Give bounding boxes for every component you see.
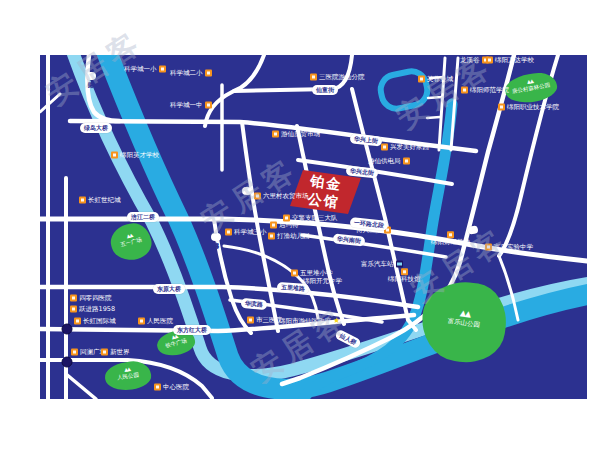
- poi-marker-icon: [205, 70, 212, 77]
- poi-label: 绵阳师范学院: [461, 87, 509, 94]
- poi-label: 人民医院: [138, 318, 173, 325]
- poi-text: 新世界: [110, 349, 130, 356]
- poi-label: 富乐实验中学: [485, 244, 533, 251]
- poi-label: 打渔幼儿园: [268, 233, 310, 240]
- poi-marker-icon: [79, 197, 86, 204]
- poi-text: 富乐汽车站: [361, 261, 394, 268]
- junction-dot: [62, 357, 73, 368]
- map-canvas: ▲▲五一广场▲▲铁牛广场▲▲人民公园▲▲富乐山公园▲▲唐公村森林公园科学城一小科…: [40, 55, 587, 399]
- road-19: [66, 374, 96, 399]
- poi-text: 游仙供电局: [368, 158, 401, 165]
- poi-marker-icon: [310, 74, 317, 81]
- bus-station-icon: [396, 261, 403, 268]
- poi-text: 绵阳财经学校: [431, 239, 470, 246]
- poi-label: 科学城二小: [170, 70, 212, 77]
- map-world: ▲▲五一广场▲▲铁牛广场▲▲人民公园▲▲富乐山公园▲▲唐公村森林公园科学城一小科…: [40, 55, 587, 399]
- poi-text: 遇玛特: [279, 222, 299, 229]
- trees-icon: ▲▲: [459, 309, 470, 318]
- poi-text: 游仙庆贸市场: [281, 131, 320, 138]
- poi-label: 四零四医院: [70, 295, 112, 302]
- park-label: 唐公村森林公园: [512, 83, 551, 95]
- poi-marker-icon: [401, 268, 408, 275]
- poi-label: 兴发美好家园: [381, 144, 429, 151]
- road-label-pill: 绵山路: [211, 233, 221, 241]
- poi-marker-icon: [70, 306, 77, 313]
- poi-text: 兴发美好家园: [390, 144, 429, 151]
- poi-label: 游仙庆贸市场: [272, 131, 320, 138]
- poi-text: 六里村农贸市场: [263, 193, 309, 200]
- poi-label: 绵阳开元中学: [303, 278, 342, 285]
- poi-marker-icon: [225, 229, 232, 236]
- poi-marker-icon: [447, 231, 454, 238]
- poi-label: 新世界: [101, 349, 130, 356]
- poi-text: 科学城一小: [124, 66, 157, 73]
- poi-marker-icon: [403, 158, 410, 165]
- poi-label: 遇玛特: [270, 222, 299, 229]
- poi-marker-icon: [461, 87, 468, 94]
- poi-text: 绵阳职业技术学院: [507, 104, 559, 111]
- poi-marker-icon: [70, 295, 77, 302]
- poi-text: 芙蓉金城: [427, 76, 453, 83]
- poi-label: 长虹世纪城: [79, 197, 121, 204]
- poi-label: 绵阳市游仙区政府★: [279, 317, 340, 325]
- poi-label: 三医院游仙分院: [310, 74, 365, 81]
- road-label-pill: 华滨路: [241, 298, 268, 310]
- poi-label: 绵阳科技馆: [388, 268, 421, 283]
- poi-marker-icon: [159, 66, 166, 73]
- poi-label: 六里村农贸市场: [254, 193, 309, 200]
- road-label-pill: 五里堆路: [277, 282, 310, 294]
- park-label: 富乐山公园: [447, 318, 480, 329]
- poi-marker-icon: [205, 102, 212, 109]
- road-label-pill: 中绵路: [86, 72, 96, 80]
- poi-label: 芙蓉金城: [418, 76, 453, 83]
- poi-text: 绵阳市游仙区政府: [279, 318, 331, 325]
- poi-text: 打渔幼儿园: [277, 233, 310, 240]
- poi-marker-icon: [154, 384, 161, 391]
- poi-marker-icon: [111, 152, 118, 159]
- poi-marker-icon: [486, 57, 493, 64]
- poi-marker-icon: [418, 76, 425, 83]
- poi-label: 中心医院: [154, 384, 189, 391]
- road-label-pill: 东原大桥: [153, 284, 185, 294]
- road-26: [427, 117, 440, 118]
- poi-text: 绵阳师范学院: [470, 87, 509, 94]
- poi-label: 绵阳财经学校: [431, 231, 470, 246]
- park-label: 铁牛广场: [165, 338, 188, 349]
- poi-label: 科学城一中: [170, 102, 212, 109]
- poi-label: 绵阳万达学校: [486, 57, 534, 64]
- poi-text: 长虹国际城: [83, 318, 116, 325]
- poi-text: 跃进路1958: [79, 306, 115, 313]
- poi-text: 科学城一中: [170, 102, 203, 109]
- road-label-pill: 涪江二桥: [127, 212, 159, 222]
- poi-text: 绵阳英才学校: [120, 152, 159, 159]
- poi-marker-icon: [247, 317, 254, 324]
- poi-marker-icon: [268, 233, 275, 240]
- star-icon: ★: [333, 317, 340, 325]
- poi-marker-icon: [485, 244, 492, 251]
- junction-dot: [62, 324, 73, 335]
- road-label-pill: 仙童街: [312, 85, 338, 95]
- poi-label: 科学城三小: [225, 229, 267, 236]
- poi-label: 科学城一小: [124, 66, 166, 73]
- road-11: [352, 89, 416, 330]
- poi-text: 绵阳开元中学: [303, 278, 342, 285]
- poi-text: 长虹世纪城: [88, 197, 121, 204]
- poi-label: 绵阳职业技术学院: [498, 104, 559, 111]
- location-map-screenshot: ▲▲五一广场▲▲铁牛广场▲▲人民公园▲▲富乐山公园▲▲唐公村森林公园科学城一小科…: [0, 0, 600, 450]
- poi-marker-icon: [498, 104, 505, 111]
- poi-marker-icon: [272, 131, 279, 138]
- poi-marker-icon: [138, 318, 145, 325]
- park-label: 五一广场: [120, 237, 143, 248]
- poi-marker-icon: [291, 270, 298, 277]
- poi-text: 中心医院: [163, 384, 189, 391]
- poi-label: 游仙供电局: [368, 158, 410, 165]
- poi-label: 富乐汽车站: [361, 261, 403, 268]
- poi-marker-icon: [381, 144, 388, 151]
- road-label-pill: 绿岛大桥: [80, 123, 112, 133]
- trees-icon: ▲▲: [124, 367, 130, 373]
- poi-label: 龙溪谷: [460, 57, 489, 64]
- poi-label: 五里堆小学: [291, 270, 333, 277]
- poi-text: 人民医院: [147, 318, 173, 325]
- poi-text: 富乐实验中学: [494, 244, 533, 251]
- poi-label: 跃进路1958: [70, 306, 115, 313]
- poi-text: 五里堆小学: [300, 270, 333, 277]
- road-label-pill: 东方红大桥: [173, 325, 211, 335]
- poi-marker-icon: [101, 349, 108, 356]
- poi-label: 绵阳英才学校: [111, 152, 159, 159]
- poi-marker-icon: [254, 193, 261, 200]
- park-label: 人民公园: [117, 373, 140, 382]
- project-name: 铂金公馆: [307, 172, 344, 211]
- poi-marker-icon: [71, 349, 78, 356]
- poi-text: 四零四医院: [79, 295, 112, 302]
- poi-marker-icon: [74, 318, 81, 325]
- poi-text: 三医院游仙分院: [319, 74, 365, 81]
- road-label-pill: 中脉路: [242, 187, 252, 195]
- poi-text: 龙溪谷: [460, 57, 480, 64]
- road-25: [428, 97, 442, 98]
- poi-label: 长虹国际城: [74, 318, 116, 325]
- poi-marker-icon: [270, 222, 277, 229]
- poi-text: 科学城三小: [234, 229, 267, 236]
- poi-label: 市三医院: [247, 317, 282, 324]
- poi-text: 科学城二小: [170, 70, 203, 77]
- poi-text: 绵阳科技馆: [388, 276, 421, 283]
- poi-text: 绵阳万达学校: [495, 57, 534, 64]
